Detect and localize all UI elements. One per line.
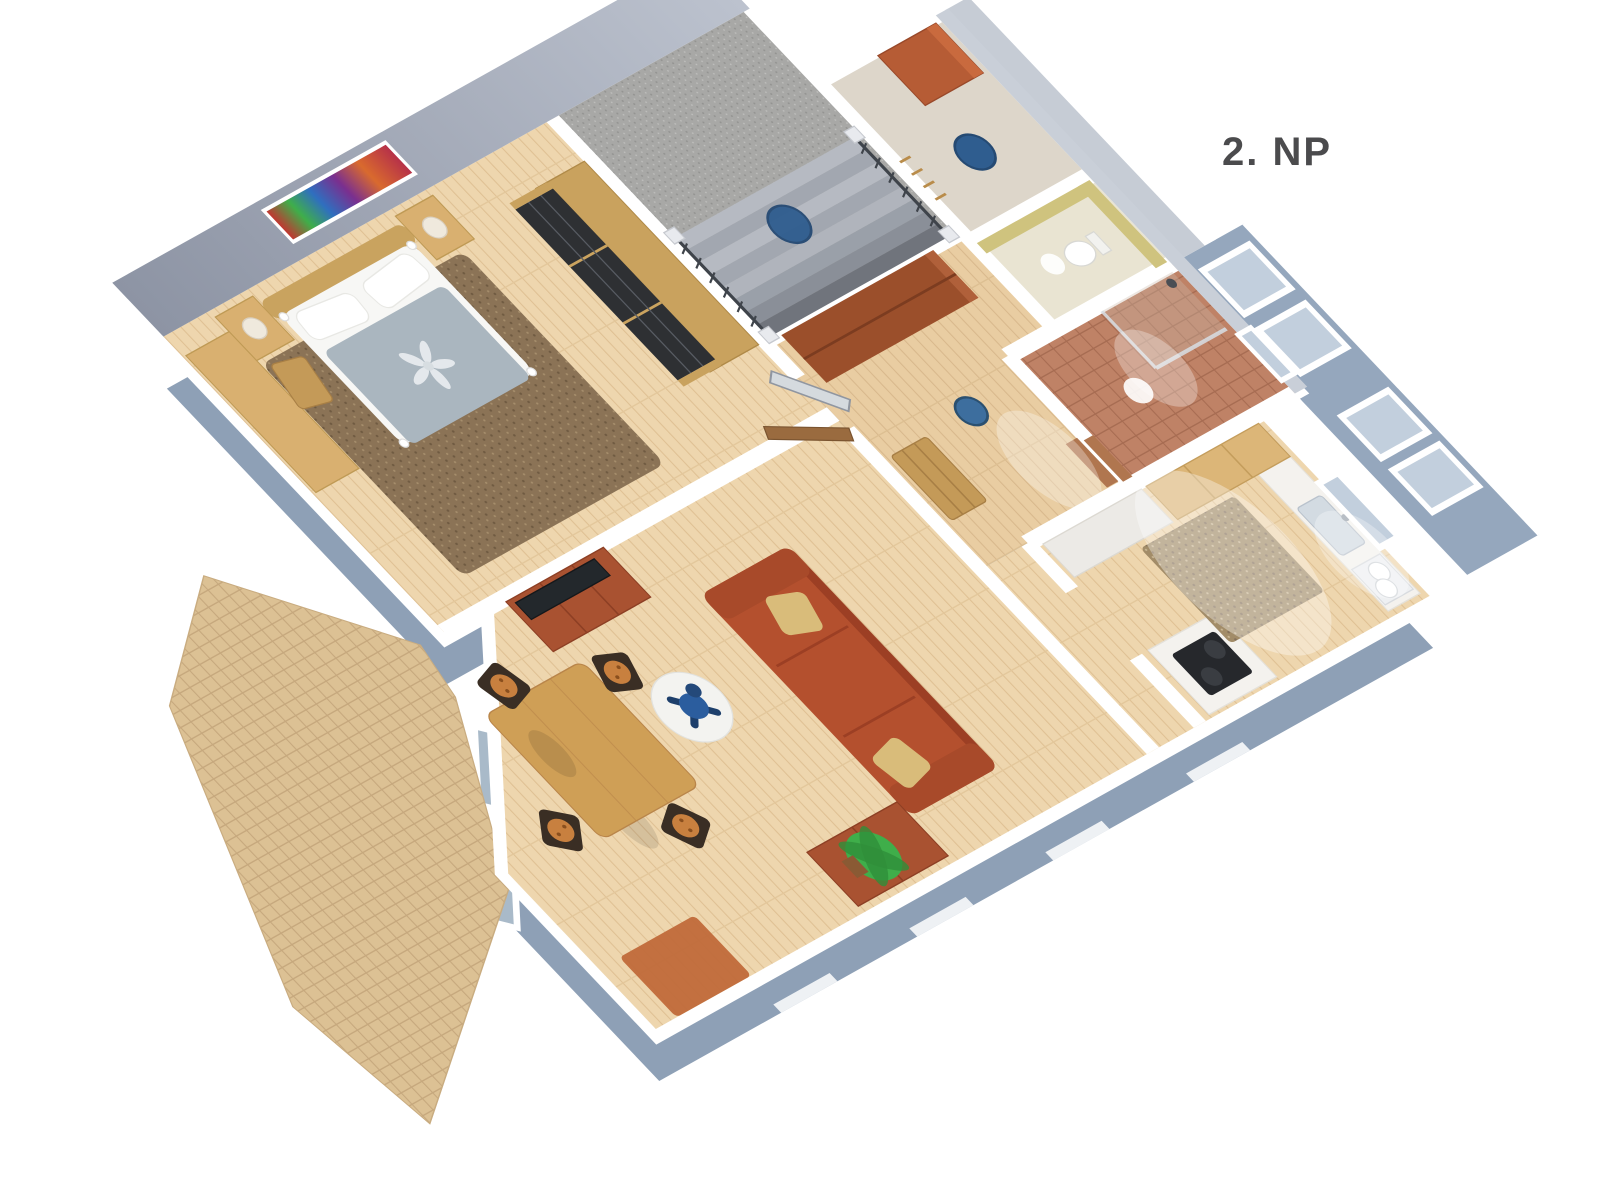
axonometric-plan bbox=[0, 0, 1584, 1189]
open-wood-door bbox=[764, 427, 854, 441]
screenshot-canvas: 2. NP bbox=[0, 0, 1600, 1200]
floor-label: 2. NP bbox=[1222, 130, 1332, 175]
floorplan-3d-render bbox=[0, 0, 1600, 1200]
